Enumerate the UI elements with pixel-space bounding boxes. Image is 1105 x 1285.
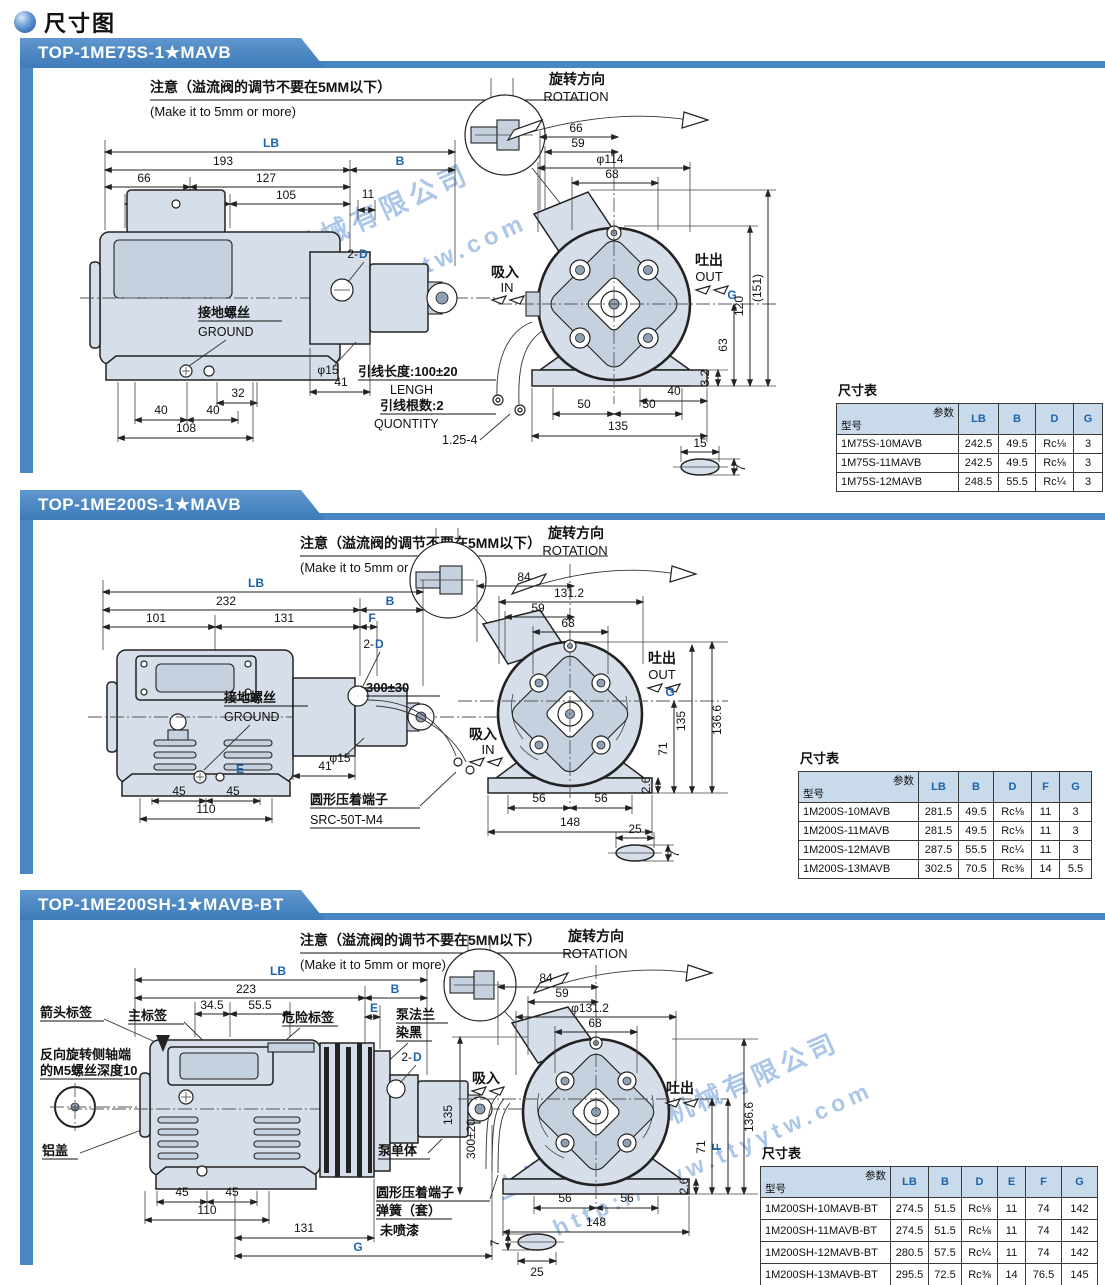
cell-model: 1M75S-10MAVB [837, 435, 959, 454]
dim-3.2: 3.2 [698, 369, 712, 386]
dim-120: 120 [732, 296, 746, 316]
cell: 274.5 [891, 1198, 929, 1220]
col-G: G [1060, 772, 1092, 803]
col-E: E [998, 1167, 1026, 1198]
dim-136.6: 136.6 [742, 1102, 756, 1132]
dim-slot7: 7 [488, 1239, 502, 1246]
cell: 287.5 [919, 841, 959, 860]
cell: 74 [1026, 1198, 1062, 1220]
page-title: 尺寸图 [14, 6, 116, 38]
cell-model: 1M200SH-13MAVB-BT [761, 1264, 891, 1285]
cell: Rc¼ [994, 841, 1032, 860]
dim-40c: 40 [667, 384, 681, 398]
dim-108: 108 [176, 421, 196, 435]
cell: Rc⅜ [962, 1264, 998, 1285]
cell: 3 [1074, 435, 1103, 454]
dim-151: (151) [750, 274, 764, 302]
dim-E: E [236, 762, 244, 776]
cell: Rc⅛ [1036, 454, 1074, 473]
ground-label-cn: 接地螺丝 [224, 690, 276, 705]
dim-101: 101 [146, 611, 166, 625]
table-row: 1M200S-12MAVB 287.5 55.5 Rc¼ 11 3 [799, 841, 1092, 860]
dim-f131.2: 131.2 [554, 586, 584, 600]
arrow-sticker-label: 箭头标签 [40, 1005, 93, 1020]
cell: 302.5 [919, 860, 959, 879]
terminal-label-2: 弹簧（套） [376, 1203, 441, 1218]
lead-length: 300±30 [366, 680, 409, 695]
mount-slot-detail: 15 7 [673, 436, 748, 475]
dim-B: B [391, 982, 400, 996]
table-row: 1M75S-11MAVB 242.5 49.5 Rc⅛ 3 [837, 454, 1103, 473]
dim-300: 300±20 [464, 1119, 478, 1159]
dim-45b: 45 [225, 1185, 239, 1199]
dim-127: 127 [256, 171, 276, 185]
note-cn: 注意（溢流阀的调节不要在5MM以下） [300, 932, 541, 948]
table-row: 1M200S-11MAVB 281.5 49.5 Rc⅛ 11 3 [799, 822, 1092, 841]
cell: 55.5 [959, 841, 994, 860]
ground-label-en: GROUND [224, 710, 280, 724]
cell: 248.5 [959, 473, 999, 492]
col-D: D [962, 1167, 998, 1198]
cell: 49.5 [999, 435, 1036, 454]
dim-slot25: 25 [530, 1265, 544, 1279]
rotation-arrow: 旋转方向 ROTATION [534, 928, 712, 993]
dim-f84: 84 [539, 971, 553, 985]
motor-side-view [80, 190, 498, 380]
cell: 242.5 [959, 454, 999, 473]
dim-11: 11 [362, 187, 375, 201]
outlet-cn: 吐出 [695, 252, 723, 268]
dim-131: 131 [274, 611, 294, 625]
dim-G: G [665, 685, 674, 699]
cell: 57.5 [929, 1242, 962, 1264]
dim-232: 232 [216, 594, 236, 608]
terminal-model: SRC-50T-M4 [310, 813, 383, 827]
cell: 14 [998, 1264, 1026, 1285]
dim-D-letter: D [375, 637, 384, 651]
diag-header: 参数 型号 [837, 404, 959, 435]
dim-f68: 68 [561, 616, 575, 630]
cell: Rc¼ [1036, 473, 1074, 492]
table1-title: 尺寸表 [838, 380, 1104, 399]
front-dims-right: 2.6 71 F 136.6 [672, 1039, 758, 1194]
col-G: G [1074, 404, 1103, 435]
section3-title: TOP-1ME200SH-1★MAVB-BT [20, 890, 325, 919]
cell-model: 1M200SH-10MAVB-BT [761, 1198, 891, 1220]
dim-B: B [396, 154, 405, 168]
lead-length-cn: 引线长度:100±20 [358, 364, 458, 379]
dim-63: 63 [716, 338, 730, 352]
dim-slot15: 15 [693, 436, 707, 450]
dim-2-prefix: 2- [363, 637, 374, 651]
dim-40b: 40 [206, 403, 220, 417]
header-row: 参数 型号 LB B D F G [799, 772, 1092, 803]
shaft-note-2: 的M5螺丝深度10 [40, 1063, 138, 1078]
cell: 76.5 [1026, 1264, 1062, 1285]
cell: 14 [1032, 860, 1060, 879]
dim-slot25: 25 [628, 822, 642, 836]
dim-slot7: 7 [668, 850, 682, 857]
table-row: 1M200SH-10MAVB-BT 274.5 51.5 Rc⅛ 11 74 1… [761, 1198, 1098, 1220]
col-B: B [959, 772, 994, 803]
table-row: 1M75S-12MAVB 248.5 55.5 Rc¼ 3 [837, 473, 1103, 492]
dim-131: 131 [294, 1221, 314, 1235]
cell-model: 1M200S-13MAVB [799, 860, 919, 879]
cell: 49.5 [959, 822, 994, 841]
cell: 51.5 [929, 1220, 962, 1242]
cell: 3 [1074, 454, 1103, 473]
inlet-cn: 吸入 [472, 1070, 500, 1086]
inlet-en: IN [482, 742, 495, 757]
lead-qty-en: QUONTITY [374, 417, 439, 431]
section1-banner: TOP-1ME75S-1★MAVB [20, 38, 1105, 68]
page-title-text: 尺寸图 [44, 6, 116, 38]
dim-D-letter: D [359, 247, 368, 261]
dim-f114: φ114 [597, 152, 624, 166]
dim-55.5: 55.5 [248, 998, 272, 1012]
table-row: 1M200SH-13MAVB-BT 295.5 72.5 Rc⅜ 14 76.5… [761, 1264, 1098, 1285]
cell: 5.5 [1060, 860, 1092, 879]
cell: Rc⅛ [994, 803, 1032, 822]
catalog-page: 尺寸图 TOP-1ME75S-1★MAVB TOP-1ME200S-1★MAVB… [0, 0, 1105, 1285]
dim-45a: 45 [175, 1185, 189, 1199]
section2-title: TOP-1ME200S-1★MAVB [20, 490, 325, 519]
ground-label-cn: 接地螺丝 [198, 305, 250, 320]
cell-model: 1M200S-11MAVB [799, 822, 919, 841]
rotation-en: ROTATION [542, 543, 607, 558]
front-dims-bottom: 40 50 50 135 [532, 384, 707, 442]
dim-71: 71 [694, 1140, 708, 1154]
cell: 3 [1060, 841, 1092, 860]
outlet-en: OUT [648, 667, 676, 682]
dim-D-letter: D [413, 1050, 422, 1064]
table3-title: 尺寸表 [762, 1143, 1104, 1162]
lead-length-en: LENGH [390, 383, 433, 397]
cell: 281.5 [919, 822, 959, 841]
cell: 72.5 [929, 1264, 962, 1285]
note-en: (Make it to 5mm or more) [150, 104, 296, 119]
shaft-note: 反向旋转侧轴端 的M5螺丝深度10 铝盖 [40, 1047, 144, 1159]
dim-G: G [353, 1240, 362, 1254]
col-LB: LB [959, 404, 999, 435]
dimension-table-1: 尺寸表 参数 型号 LB B D G 1M75S-10MAVB 242.5 49… [836, 380, 1104, 492]
dim-34.5: 34.5 [200, 998, 224, 1012]
dim-slot7: 7 [734, 464, 748, 471]
col-F: F [1026, 1167, 1062, 1198]
terminal-notes: 圆形压着端子 弹簧（套） 未喷漆 [376, 1175, 498, 1238]
cell: Rc⅛ [962, 1220, 998, 1242]
cell: 142 [1062, 1220, 1098, 1242]
cell: 280.5 [891, 1242, 929, 1264]
section3-banner: TOP-1ME200SH-1★MAVB-BT [20, 890, 1105, 920]
rotation-cn: 旋转方向 [548, 71, 605, 87]
dim-LB: LB [270, 964, 286, 978]
section1-title: TOP-1ME75S-1★MAVB [20, 38, 325, 67]
motor-side-view [68, 1035, 528, 1189]
dim-f131.2: φ131.2 [571, 1001, 609, 1015]
dim-148: 148 [586, 1215, 606, 1229]
cell: 142 [1062, 1242, 1098, 1264]
cell: 51.5 [929, 1198, 962, 1220]
lead-terminal: 1.25-4 [442, 433, 477, 447]
base-dims: 32 40 40 108 [118, 382, 257, 442]
ground-label-en: GROUND [198, 325, 254, 339]
dim-136.6: 136.6 [710, 705, 724, 735]
cell: 3 [1060, 822, 1092, 841]
cell-model: 1M75S-12MAVB [837, 473, 959, 492]
col-LB: LB [919, 772, 959, 803]
dim-105: 105 [276, 188, 296, 202]
banner-block: TOP-1ME200S-1★MAVB [20, 490, 325, 520]
dim-45b: 45 [226, 784, 240, 798]
col-B: B [999, 404, 1036, 435]
cell: 11 [998, 1242, 1026, 1264]
terminal-cn: 圆形压着端子 [310, 792, 388, 807]
dim-56b: 56 [620, 1191, 634, 1205]
dim-2.6: 2.6 [677, 1177, 691, 1194]
aluminum-cover-label: 铝盖 [42, 1143, 68, 1158]
col-D: D [994, 772, 1032, 803]
dim-2-prefix: 2- [401, 1050, 412, 1064]
dim-f68: 68 [588, 1016, 602, 1030]
dim-56b: 56 [594, 791, 608, 805]
dim-135: 135 [441, 1105, 455, 1125]
cell: 49.5 [999, 454, 1036, 473]
dim-f66: 66 [569, 121, 583, 135]
cell: 70.5 [959, 860, 994, 879]
shaft-note-1: 反向旋转侧轴端 [40, 1047, 131, 1062]
dim-71: 71 [656, 742, 670, 756]
cell: 11 [1032, 822, 1060, 841]
header-row: 参数 型号 LB B D E F G [761, 1167, 1098, 1198]
table-row: 1M75S-10MAVB 242.5 49.5 Rc⅛ 3 [837, 435, 1103, 454]
dim-B: B [386, 594, 395, 608]
cell: 295.5 [891, 1264, 929, 1285]
cell-model: 1M200SH-12MAVB-BT [761, 1242, 891, 1264]
cell: 281.5 [919, 803, 959, 822]
dim-50a: 50 [577, 397, 591, 411]
cell-model: 1M200S-10MAVB [799, 803, 919, 822]
inlet-cn: 吸入 [469, 726, 497, 742]
note-cn: 注意（溢流阀的调节不要在5MM以下） [150, 79, 391, 95]
cell: 142 [1062, 1198, 1098, 1220]
outlet-en: OUT [695, 269, 723, 284]
dim-2.6: 2.6 [639, 776, 653, 793]
dim-56a: 56 [558, 1191, 572, 1205]
dim-50b: 50 [642, 397, 656, 411]
dim-56a: 56 [532, 791, 546, 805]
rotation-en: ROTATION [543, 89, 608, 104]
cell-model: 1M75S-11MAVB [837, 454, 959, 473]
cell: 49.5 [959, 803, 994, 822]
dim-148: 148 [560, 815, 580, 829]
dim-F: F [368, 611, 375, 625]
dim-110: 110 [196, 802, 215, 816]
terminal-label-1: 圆形压着端子 [376, 1185, 454, 1200]
cell: 74 [1026, 1242, 1062, 1264]
cell: Rc¼ [962, 1242, 998, 1264]
bellows-coupling [320, 1043, 374, 1177]
unpainted-label: 未喷漆 [379, 1223, 419, 1238]
table1: 参数 型号 LB B D G 1M75S-10MAVB 242.5 49.5 R… [836, 403, 1103, 492]
cell: 3 [1060, 803, 1092, 822]
dim-66: 66 [137, 171, 151, 185]
table-row: 1M200SH-12MAVB-BT 280.5 57.5 Rc¼ 11 74 1… [761, 1242, 1098, 1264]
cell: 55.5 [999, 473, 1036, 492]
dim-41: 41 [334, 375, 348, 389]
cell: 11 [998, 1198, 1026, 1220]
rotation-cn: 旋转方向 [547, 525, 604, 541]
col-B: B [929, 1167, 962, 1198]
dim-135: 135 [674, 711, 688, 731]
dim-110: 110 [197, 1203, 216, 1217]
cell: Rc⅛ [962, 1198, 998, 1220]
pump-unit-label: 泵单体 [378, 1143, 418, 1158]
dim-LB: LB [263, 136, 279, 150]
cell: 274.5 [891, 1220, 929, 1242]
banner-block: TOP-1ME200SH-1★MAVB-BT [20, 890, 325, 920]
cell: 11 [1032, 841, 1060, 860]
dim-f59: 59 [531, 601, 545, 615]
dim-F: F [710, 1143, 724, 1150]
danger-sticker-label: 危险标签 [282, 1010, 335, 1025]
cell: 74 [1026, 1220, 1062, 1242]
flange-label-1: 泵法兰 [396, 1007, 435, 1022]
cell-model: 1M200S-12MAVB [799, 841, 919, 860]
cell: 11 [998, 1220, 1026, 1242]
col-LB: LB [891, 1167, 929, 1198]
dim-45a: 45 [172, 784, 186, 798]
cell-model: 1M200SH-11MAVB-BT [761, 1220, 891, 1242]
banner-block: TOP-1ME75S-1★MAVB [20, 38, 325, 68]
cell: 145 [1062, 1264, 1098, 1285]
dimension-table-2: 尺寸表 参数 型号 LB B D F G 1M200S-10MAVB 281.5… [798, 748, 1098, 879]
lead-wire-notes: 引线长度:100±20 LENGH 引线根数:2 QUONTITY 1.25-4 [358, 322, 544, 447]
table-row: 1M200SH-11MAVB-BT 274.5 51.5 Rc⅛ 11 74 1… [761, 1220, 1098, 1242]
table2: 参数 型号 LB B D F G 1M200S-10MAVB 281.5 49.… [798, 771, 1092, 879]
dim-f59: 59 [555, 986, 569, 1000]
dim-135: 135 [608, 419, 628, 433]
dim-f59: 59 [571, 136, 585, 150]
dim-f84: 84 [517, 570, 531, 584]
col-F: F [1032, 772, 1060, 803]
table-row: 1M200S-13MAVB 302.5 70.5 Rc⅜ 14 5.5 [799, 860, 1092, 879]
col-D: D [1036, 404, 1074, 435]
col-G: G [1062, 1167, 1098, 1198]
dim-223: 223 [236, 982, 256, 996]
header-row: 参数 型号 LB B D G [837, 404, 1103, 435]
dim-40a: 40 [154, 403, 168, 417]
sphere-bullet-icon [14, 11, 36, 33]
note-en: (Make it to 5mm or more) [300, 957, 446, 972]
lead-qty-cn: 引线根数:2 [380, 398, 444, 413]
pump-front-view [458, 564, 728, 809]
note-cn: 注意（溢流阀的调节不要在5MM以下） [300, 535, 541, 551]
table2-title: 尺寸表 [800, 748, 1098, 767]
section2-banner: TOP-1ME200S-1★MAVB [20, 490, 1105, 520]
inlet-cn: 吸入 [491, 264, 519, 280]
dim-LB: LB [248, 576, 264, 590]
dim-193: 193 [213, 154, 233, 168]
dim-41: 41 [318, 759, 332, 773]
dim-2-prefix: 2- [347, 247, 358, 261]
main-sticker-label: 主标签 [128, 1008, 168, 1023]
rotation-en: ROTATION [562, 946, 627, 961]
dim-f68: 68 [605, 167, 619, 181]
dim-E: E [370, 1001, 378, 1015]
diag-header: 参数 型号 [761, 1167, 891, 1198]
table-row: 1M200S-10MAVB 281.5 49.5 Rc⅛ 11 3 [799, 803, 1092, 822]
dimension-table-3: 尺寸表 参数 型号 LB B D E F G 1M200SH-10MAVB-BT… [760, 1143, 1104, 1285]
mount-slot-detail: 25 7 [608, 822, 682, 861]
inlet-en: IN [501, 280, 514, 295]
cell: Rc⅛ [994, 822, 1032, 841]
dim-32: 32 [231, 386, 245, 400]
diag-header: 参数 型号 [799, 772, 919, 803]
cell: 3 [1074, 473, 1103, 492]
cell: 11 [1032, 803, 1060, 822]
outlet-cn: 吐出 [648, 650, 676, 666]
outlet-cn: 吐出 [666, 1080, 694, 1096]
mount-slot-detail: 7 25 [488, 1234, 564, 1279]
flange-label-2: 染黑 [395, 1025, 422, 1040]
cell: Rc⅛ [1036, 435, 1074, 454]
cell: 242.5 [959, 435, 999, 454]
cell: Rc⅜ [994, 860, 1032, 879]
rotation-cn: 旋转方向 [567, 928, 624, 944]
table3: 参数 型号 LB B D E F G 1M200SH-10MAVB-BT 274… [760, 1166, 1098, 1285]
